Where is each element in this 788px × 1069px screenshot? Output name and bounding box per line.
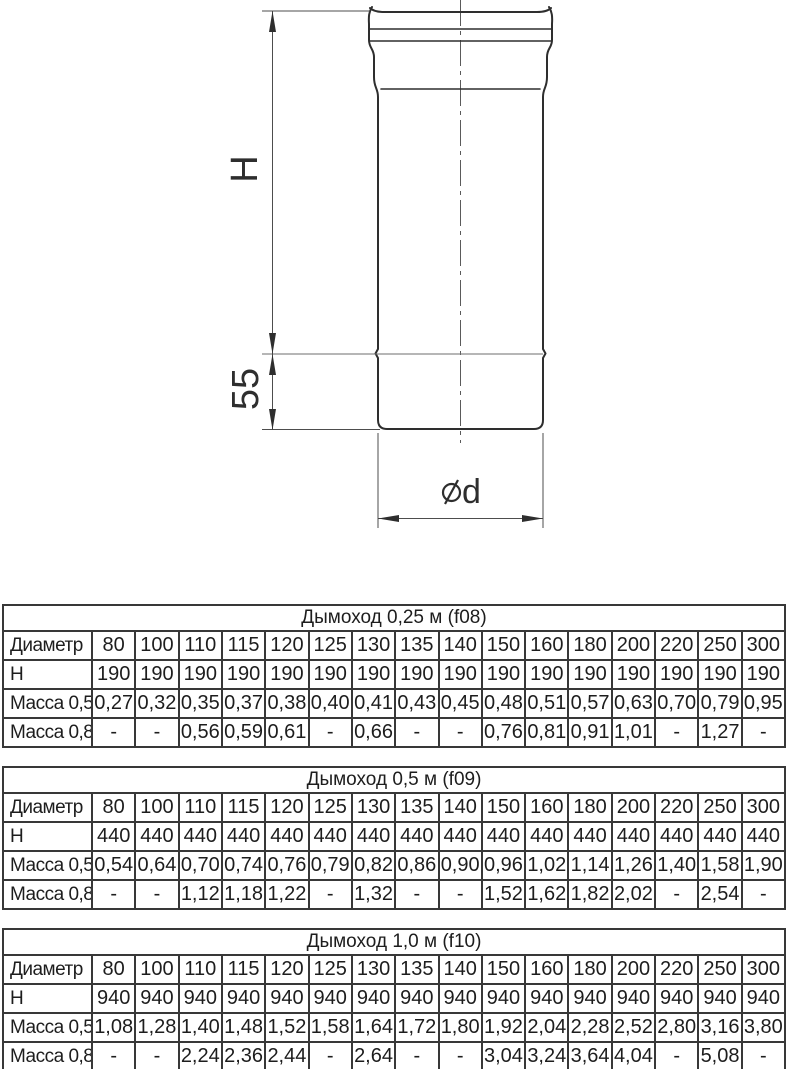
value-cell: 120 (265, 793, 308, 822)
value-cell: 1,12 (179, 880, 222, 909)
value-cell: 140 (439, 793, 482, 822)
value-cell: 180 (568, 955, 611, 984)
value-cell: 1,62 (525, 880, 568, 909)
value-cell: 440 (698, 822, 741, 851)
table-row: H940940940940940940940940940940940940940… (3, 984, 785, 1013)
diameter-symbol (443, 480, 460, 504)
value-cell: 130 (352, 955, 395, 984)
value-cell: 190 (309, 660, 352, 689)
value-cell: 100 (135, 631, 178, 660)
table-row: Диаметр801001101151201251301351401501601… (3, 955, 785, 984)
value-cell: 0,51 (525, 689, 568, 718)
value-cell: 1,01 (612, 718, 655, 747)
value-cell: 0,86 (395, 851, 438, 880)
value-cell: 0,79 (309, 851, 352, 880)
row-label: Масса 0,8 (3, 880, 92, 909)
value-cell: 940 (265, 984, 308, 1013)
value-cell: 0,32 (135, 689, 178, 718)
value-cell: 1,90 (742, 851, 785, 880)
value-cell: 1,52 (265, 1013, 308, 1042)
value-cell: 940 (352, 984, 395, 1013)
value-cell: 0,66 (352, 718, 395, 747)
value-cell: 1,26 (612, 851, 655, 880)
table-row: H190190190190190190190190190190190190190… (3, 660, 785, 689)
value-cell: 120 (265, 631, 308, 660)
value-cell: 0,61 (265, 718, 308, 747)
value-cell: 140 (439, 631, 482, 660)
spec-table-f08: Дымоход 0,25 м (f08) Диаметр801001101151… (2, 604, 786, 748)
value-cell: 1,28 (135, 1013, 178, 1042)
value-cell: 0,54 (92, 851, 135, 880)
value-cell: 3,16 (698, 1013, 741, 1042)
dimension-socket (262, 354, 380, 430)
value-cell: 1,58 (309, 1013, 352, 1042)
value-cell: 940 (568, 984, 611, 1013)
value-cell: 190 (482, 660, 525, 689)
value-cell: 115 (222, 631, 265, 660)
spec-table-f09: Дымоход 0,5 м (f09) Диаметр8010011011512… (2, 766, 786, 910)
value-cell: 1,48 (222, 1013, 265, 1042)
value-cell: 940 (439, 984, 482, 1013)
value-cell: 200 (612, 955, 655, 984)
height-label: H (224, 155, 266, 182)
value-cell: 440 (352, 822, 395, 851)
value-cell: 0,41 (352, 689, 395, 718)
table-title-row: Дымоход 0,5 м (f09) (3, 767, 785, 793)
dimension-diameter (378, 433, 543, 528)
value-cell: 440 (309, 822, 352, 851)
value-cell: 940 (482, 984, 525, 1013)
value-cell: - (309, 718, 352, 747)
row-label: Масса 0,8 (3, 718, 92, 747)
value-cell: 0,59 (222, 718, 265, 747)
value-cell: 180 (568, 631, 611, 660)
value-cell: 180 (568, 793, 611, 822)
table-row: Масса 0,51,081,281,401,481,521,581,641,7… (3, 1013, 785, 1042)
value-cell: 2,80 (655, 1013, 698, 1042)
value-cell: 1,40 (655, 851, 698, 880)
value-cell: 3,64 (568, 1042, 611, 1069)
value-cell: 2,64 (352, 1042, 395, 1069)
value-cell: 2,54 (698, 880, 741, 909)
value-cell: 80 (92, 631, 135, 660)
value-cell: 110 (179, 793, 222, 822)
row-label: Масса 0,5 (3, 689, 92, 718)
value-cell: 940 (92, 984, 135, 1013)
value-cell: 1,82 (568, 880, 611, 909)
value-cell: 190 (612, 660, 655, 689)
value-cell: 0,63 (612, 689, 655, 718)
value-cell: 0,76 (265, 851, 308, 880)
value-cell: 160 (525, 793, 568, 822)
value-cell: 0,91 (568, 718, 611, 747)
socket-depth-label: 55 (225, 368, 267, 410)
table-row: Масса 0,8--2,242,362,44-2,64--3,043,243,… (3, 1042, 785, 1069)
table-row: Масса 0,50,540,640,700,740,760,790,820,8… (3, 851, 785, 880)
value-cell: 0,40 (309, 689, 352, 718)
value-cell: 190 (265, 660, 308, 689)
value-cell: - (742, 880, 785, 909)
value-cell: 130 (352, 631, 395, 660)
value-cell: 190 (222, 660, 265, 689)
value-cell: 1,08 (92, 1013, 135, 1042)
value-cell: 190 (135, 660, 178, 689)
value-cell: - (655, 880, 698, 909)
value-cell: 120 (265, 955, 308, 984)
value-cell: - (92, 718, 135, 747)
value-cell: 0,56 (179, 718, 222, 747)
value-cell: 440 (568, 822, 611, 851)
value-cell: 160 (525, 955, 568, 984)
table-row: Диаметр801001101151201251301351401501601… (3, 793, 785, 822)
value-cell: - (395, 880, 438, 909)
value-cell: 0,35 (179, 689, 222, 718)
row-label: Масса 0,5 (3, 1013, 92, 1042)
value-cell: 440 (742, 822, 785, 851)
value-cell: 1,22 (265, 880, 308, 909)
value-cell: 190 (395, 660, 438, 689)
table-row: Диаметр801001101151201251301351401501601… (3, 631, 785, 660)
page: H 55 d Дымохо (0, 0, 788, 1069)
value-cell: 1,80 (439, 1013, 482, 1042)
value-cell: 0,27 (92, 689, 135, 718)
value-cell: 200 (612, 793, 655, 822)
value-cell: 190 (179, 660, 222, 689)
value-cell: 1,40 (179, 1013, 222, 1042)
value-cell: 440 (395, 822, 438, 851)
value-cell: 300 (742, 793, 785, 822)
row-label: H (3, 984, 92, 1013)
value-cell: 110 (179, 631, 222, 660)
value-cell: 80 (92, 793, 135, 822)
value-cell: 0,82 (352, 851, 395, 880)
value-cell: 130 (352, 793, 395, 822)
table-title: Дымоход 0,5 м (f09) (3, 767, 785, 793)
value-cell: 190 (698, 660, 741, 689)
row-label: Диаметр (3, 793, 92, 822)
value-cell: 0,48 (482, 689, 525, 718)
value-cell: 440 (525, 822, 568, 851)
value-cell: 100 (135, 955, 178, 984)
value-cell: 3,04 (482, 1042, 525, 1069)
value-cell: 220 (655, 631, 698, 660)
value-cell: 0,96 (482, 851, 525, 880)
value-cell: - (92, 880, 135, 909)
value-cell: 0,90 (439, 851, 482, 880)
row-label: H (3, 660, 92, 689)
value-cell: 940 (612, 984, 655, 1013)
table-row: Масса 0,50,270,320,350,370,380,400,410,4… (3, 689, 785, 718)
value-cell: 135 (395, 631, 438, 660)
value-cell: 190 (439, 660, 482, 689)
value-cell: - (742, 718, 785, 747)
spec-table-f10: Дымоход 1,0 м (f10) Диаметр8010011011512… (2, 928, 786, 1069)
value-cell: 1,58 (698, 851, 741, 880)
row-label: Масса 0,5 (3, 851, 92, 880)
value-cell: - (309, 1042, 352, 1069)
value-cell: 250 (698, 955, 741, 984)
value-cell: - (439, 1042, 482, 1069)
value-cell: 440 (439, 822, 482, 851)
value-cell: 220 (655, 955, 698, 984)
value-cell: 0,45 (439, 689, 482, 718)
value-cell: - (395, 1042, 438, 1069)
value-cell: 150 (482, 955, 525, 984)
value-cell: 0,79 (698, 689, 741, 718)
value-cell: - (135, 880, 178, 909)
value-cell: 0,76 (482, 718, 525, 747)
value-cell: 440 (222, 822, 265, 851)
table-title: Дымоход 0,25 м (f08) (3, 605, 785, 631)
value-cell: 0,70 (655, 689, 698, 718)
value-cell: 300 (742, 955, 785, 984)
value-cell: 940 (222, 984, 265, 1013)
value-cell: 115 (222, 793, 265, 822)
row-label: Диаметр (3, 955, 92, 984)
value-cell: 125 (309, 955, 352, 984)
value-cell: 150 (482, 793, 525, 822)
value-cell: 0,95 (742, 689, 785, 718)
value-cell: 940 (135, 984, 178, 1013)
value-cell: 440 (92, 822, 135, 851)
value-cell: - (439, 718, 482, 747)
value-cell: 0,38 (265, 689, 308, 718)
value-cell: 125 (309, 793, 352, 822)
value-cell: 440 (482, 822, 525, 851)
value-cell: - (655, 1042, 698, 1069)
value-cell: 0,70 (179, 851, 222, 880)
row-label: H (3, 822, 92, 851)
value-cell: 190 (742, 660, 785, 689)
value-cell: 0,43 (395, 689, 438, 718)
value-cell: 2,52 (612, 1013, 655, 1042)
value-cell: 440 (265, 822, 308, 851)
value-cell: 150 (482, 631, 525, 660)
dimension-height (262, 11, 370, 354)
value-cell: 250 (698, 793, 741, 822)
value-cell: 190 (92, 660, 135, 689)
value-cell: 5,08 (698, 1042, 741, 1069)
value-cell: 940 (742, 984, 785, 1013)
value-cell: 1,02 (525, 851, 568, 880)
value-cell: 940 (309, 984, 352, 1013)
table-title-row: Дымоход 0,25 м (f08) (3, 605, 785, 631)
value-cell: 1,64 (352, 1013, 395, 1042)
table-row: Масса 0,8--0,560,590,61-0,66--0,760,810,… (3, 718, 785, 747)
value-cell: 125 (309, 631, 352, 660)
table-row: H440440440440440440440440440440440440440… (3, 822, 785, 851)
table-row: Масса 0,8--1,121,181,22-1,32--1,521,621,… (3, 880, 785, 909)
value-cell: 0,74 (222, 851, 265, 880)
value-cell: 110 (179, 955, 222, 984)
value-cell: - (439, 880, 482, 909)
value-cell: 3,24 (525, 1042, 568, 1069)
value-cell: 940 (395, 984, 438, 1013)
value-cell: 1,18 (222, 880, 265, 909)
value-cell: 3,80 (742, 1013, 785, 1042)
pipe-drawing: H 55 d (0, 0, 788, 570)
value-cell: 1,72 (395, 1013, 438, 1042)
value-cell: - (395, 718, 438, 747)
value-cell: 190 (352, 660, 395, 689)
value-cell: 1,92 (482, 1013, 525, 1042)
value-cell: 2,28 (568, 1013, 611, 1042)
value-cell: 440 (135, 822, 178, 851)
value-cell: 0,64 (135, 851, 178, 880)
diameter-letter: d (462, 473, 481, 511)
value-cell: 220 (655, 793, 698, 822)
value-cell: 2,24 (179, 1042, 222, 1069)
value-cell: - (135, 718, 178, 747)
value-cell: 4,04 (612, 1042, 655, 1069)
value-cell: - (135, 1042, 178, 1069)
value-cell: 0,57 (568, 689, 611, 718)
value-cell: 200 (612, 631, 655, 660)
value-cell: 1,14 (568, 851, 611, 880)
value-cell: 135 (395, 793, 438, 822)
value-cell: 115 (222, 955, 265, 984)
value-cell: 0,37 (222, 689, 265, 718)
value-cell: 440 (179, 822, 222, 851)
value-cell: 0,81 (525, 718, 568, 747)
value-cell: 1,32 (352, 880, 395, 909)
value-cell: 2,04 (525, 1013, 568, 1042)
value-cell: 140 (439, 955, 482, 984)
value-cell: 135 (395, 955, 438, 984)
value-cell: - (655, 718, 698, 747)
value-cell: - (742, 1042, 785, 1069)
value-cell: 940 (525, 984, 568, 1013)
value-cell: 2,36 (222, 1042, 265, 1069)
value-cell: 300 (742, 631, 785, 660)
value-cell: 940 (655, 984, 698, 1013)
value-cell: - (309, 880, 352, 909)
value-cell: 190 (525, 660, 568, 689)
value-cell: 440 (655, 822, 698, 851)
value-cell: 2,02 (612, 880, 655, 909)
table-title: Дымоход 1,0 м (f10) (3, 929, 785, 955)
value-cell: 440 (612, 822, 655, 851)
value-cell: 1,27 (698, 718, 741, 747)
value-cell: 2,44 (265, 1042, 308, 1069)
value-cell: 940 (698, 984, 741, 1013)
value-cell: 190 (655, 660, 698, 689)
value-cell: 100 (135, 793, 178, 822)
row-label: Диаметр (3, 631, 92, 660)
value-cell: - (92, 1042, 135, 1069)
value-cell: 250 (698, 631, 741, 660)
table-title-row: Дымоход 1,0 м (f10) (3, 929, 785, 955)
value-cell: 1,52 (482, 880, 525, 909)
value-cell: 190 (568, 660, 611, 689)
row-label: Масса 0,8 (3, 1042, 92, 1069)
value-cell: 80 (92, 955, 135, 984)
value-cell: 160 (525, 631, 568, 660)
value-cell: 940 (179, 984, 222, 1013)
